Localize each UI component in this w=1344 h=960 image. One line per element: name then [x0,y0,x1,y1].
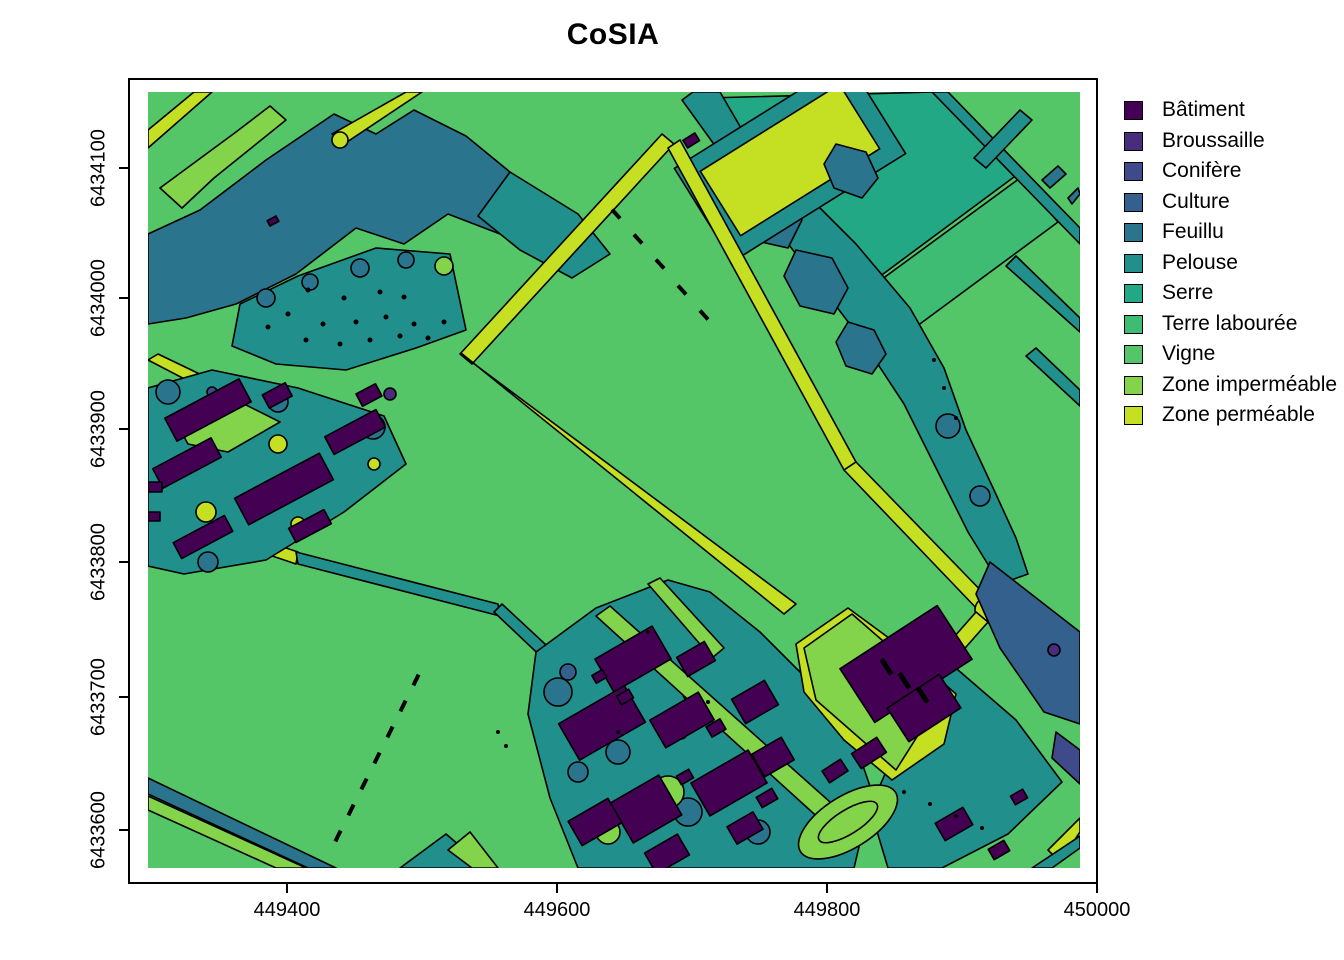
legend-item-label: Culture [1162,190,1230,214]
legend-swatch-batiment [1124,101,1143,120]
legend-item: Broussaille [1124,130,1265,152]
legend-item-label: Zone imperméable [1162,373,1337,397]
x-axis-tick-label: 449400 [254,899,321,922]
legend-item-label: Terre labourée [1162,312,1297,336]
legend-swatch-terre_labouree [1124,315,1143,334]
legend-item: Zone perméable [1124,404,1315,426]
y-axis-tick [119,297,128,299]
legend-item-label: Bâtiment [1162,98,1245,122]
legend-swatch-serre [1124,284,1143,303]
x-axis-tick-label: 449600 [524,899,591,922]
y-axis-tick [119,696,128,698]
y-axis-tick [119,829,128,831]
legend-swatch-zone_impermeable [1124,376,1143,395]
legend-item: Zone imperméable [1124,374,1337,396]
x-axis-tick [556,884,558,893]
land-cover-map [148,92,1080,868]
legend-swatch-culture [1124,193,1143,212]
y-axis-tick-label: 6434100 [88,129,111,207]
y-axis-tick-label: 6433900 [88,390,111,468]
y-axis-tick [119,561,128,563]
legend-swatch-zone_permeable [1124,406,1143,425]
legend-item-label: Serre [1162,281,1213,305]
x-axis-tick [826,884,828,893]
legend-item-label: Vigne [1162,342,1215,366]
legend-swatch-vigne [1124,345,1143,364]
legend-item: Vigne [1124,343,1215,365]
legend-swatch-broussaille [1124,132,1143,151]
x-axis-tick [286,884,288,893]
y-axis-tick-label: 6433600 [88,791,111,869]
legend-item: Pelouse [1124,252,1238,274]
legend-item: Bâtiment [1124,99,1245,121]
r-plot-figure: CoSIA [0,0,1344,960]
legend: BâtimentBroussailleConifèreCultureFeuill… [1124,99,1344,439]
legend-item-label: Feuillu [1162,220,1224,244]
plot-title: CoSIA [128,18,1098,52]
legend-item-label: Broussaille [1162,129,1265,153]
legend-item: Serre [1124,282,1213,304]
legend-swatch-conifere [1124,162,1143,181]
y-axis-tick [119,428,128,430]
y-axis-tick [119,167,128,169]
legend-item: Feuillu [1124,221,1224,243]
y-axis-tick-label: 6433800 [88,523,111,601]
legend-item: Culture [1124,191,1230,213]
legend-item-label: Zone perméable [1162,403,1315,427]
legend-item: Terre labourée [1124,313,1297,335]
x-axis-tick-label: 449800 [794,899,861,922]
legend-item: Conifère [1124,160,1241,182]
legend-swatch-pelouse [1124,254,1143,273]
x-axis-tick-label: 450000 [1064,899,1131,922]
legend-item-label: Pelouse [1162,251,1238,275]
x-axis-tick [1096,884,1098,893]
y-axis-tick-label: 6433700 [88,658,111,736]
y-axis-tick-label: 6434000 [88,259,111,337]
legend-swatch-feuillu [1124,223,1143,242]
legend-item-label: Conifère [1162,159,1241,183]
